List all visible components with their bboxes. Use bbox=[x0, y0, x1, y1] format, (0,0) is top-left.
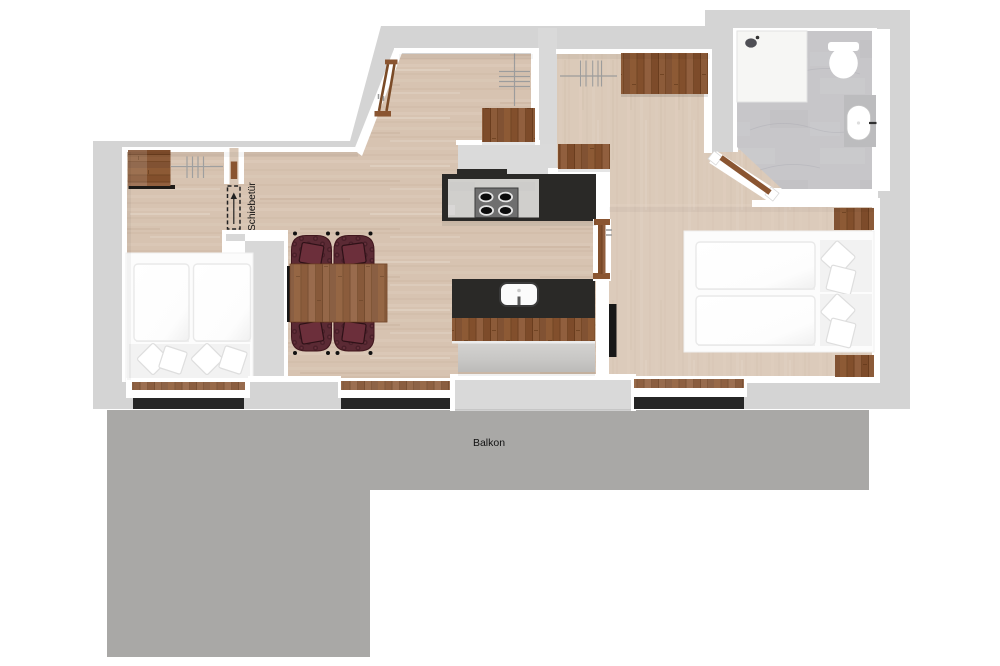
svg-text:Balkon: Balkon bbox=[473, 437, 505, 449]
svg-text:Schiebetür: Schiebetür bbox=[247, 182, 258, 231]
